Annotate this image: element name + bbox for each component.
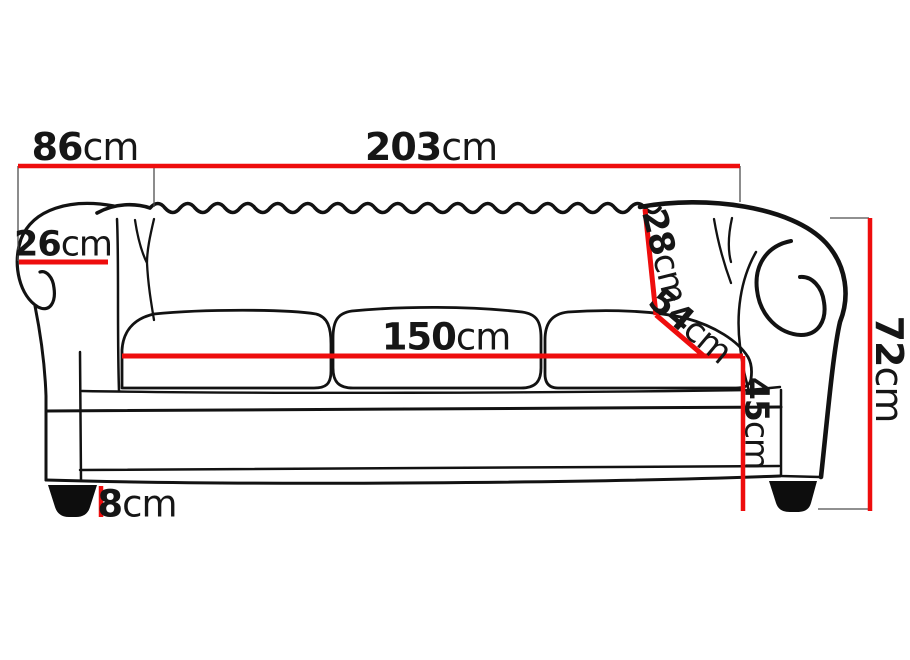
left-arm-front-seam bbox=[80, 352, 81, 480]
dimension-unit: cm bbox=[456, 316, 510, 359]
left-leg bbox=[48, 485, 97, 517]
sofa-back-wavy-top bbox=[97, 204, 660, 214]
right-arm-front-seam bbox=[781, 390, 820, 477]
dimension-unit: cm bbox=[738, 421, 777, 469]
dimension-label-overall-width: 203cm bbox=[365, 128, 497, 166]
dimension-value: 26 bbox=[14, 225, 61, 265]
dimension-unit: cm bbox=[61, 225, 112, 265]
dimension-value: 45 bbox=[738, 377, 777, 421]
dimension-unit: cm bbox=[82, 125, 138, 169]
dimension-label-seat-height: 45cm bbox=[741, 377, 774, 469]
right-leg bbox=[769, 481, 817, 512]
right-tufting-crease bbox=[714, 218, 732, 283]
seat-cushion-left bbox=[122, 310, 331, 388]
left-arm-front-edge bbox=[35, 306, 46, 480]
dimension-value: 150 bbox=[382, 316, 456, 359]
base-rail-mid bbox=[80, 466, 779, 470]
dimension-value: 72 bbox=[867, 316, 910, 367]
dimension-unit: cm bbox=[867, 366, 910, 422]
dimension-label-leg-height: 8cm bbox=[97, 486, 176, 523]
dimension-label-seat-width: 150cm bbox=[382, 319, 511, 356]
dimension-label-arm-roll-width: 26cm bbox=[14, 228, 112, 263]
dimension-label-arm-section-width: 86cm bbox=[32, 128, 139, 166]
dimension-value: 8 bbox=[97, 483, 122, 526]
dimension-unit: cm bbox=[441, 125, 497, 169]
dimension-label-overall-height: 72cm bbox=[870, 316, 908, 423]
left-arm-inner-edge bbox=[117, 219, 119, 391]
left-tufting-crease bbox=[135, 219, 154, 320]
right-arm-scroll-hook bbox=[757, 241, 825, 335]
sofa-dimension-diagram: 86cm 203cm 26cm 28cm 54cm 150cm 45cm 72c… bbox=[0, 0, 910, 660]
dimension-value: 203 bbox=[365, 125, 441, 169]
dimension-value: 86 bbox=[32, 125, 83, 169]
dimension-unit: cm bbox=[122, 483, 176, 526]
base-rail-top bbox=[46, 407, 781, 411]
